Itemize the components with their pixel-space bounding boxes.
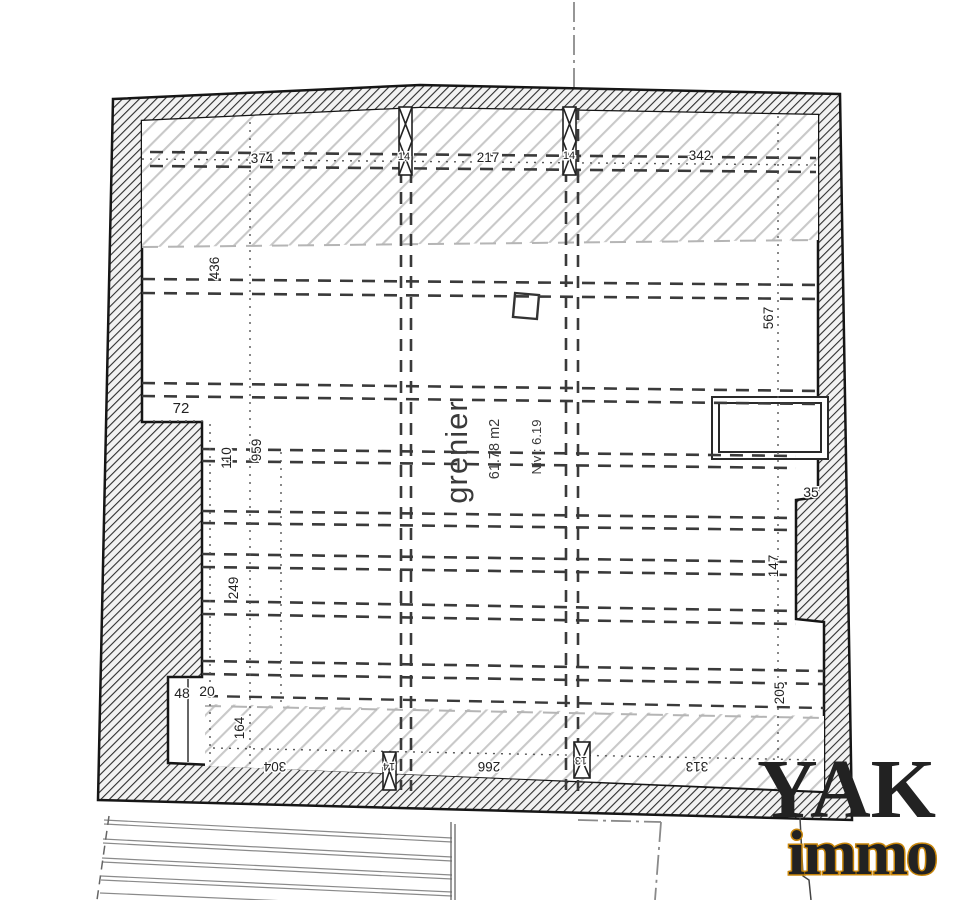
agency-logo: YAK immo: [757, 743, 936, 888]
dim-266: 266: [478, 759, 501, 774]
room-area-label: 61.78 m2: [487, 419, 503, 479]
dim-313: 313: [686, 759, 709, 774]
dim-147: 147: [766, 555, 781, 578]
dim-436: 436: [207, 257, 222, 280]
dim-217: 217: [477, 150, 500, 165]
dim-205: 205: [772, 682, 787, 705]
dim-35: 35: [803, 484, 819, 500]
dim-959: 959: [249, 439, 264, 462]
floor-plan-page: 374 217 342 436 72 110 959 249 164 48 20…: [0, 0, 967, 900]
dim-110: 110: [219, 447, 234, 469]
dim-304: 304: [263, 759, 286, 774]
dim-567: 567: [761, 307, 776, 330]
dim-164: 164: [232, 716, 247, 739]
dim-post-14-top-center: 14: [563, 150, 575, 162]
room-name-label: grenier: [439, 400, 474, 504]
dim-post-14-top-left: 14: [398, 151, 410, 163]
room-annotation: grenier 61.78 m2 Niv : 6.19: [439, 400, 544, 504]
room-level-label: Niv : 6.19: [529, 420, 544, 475]
logo-sub-text: immo: [788, 817, 936, 888]
post-top-center: [563, 107, 576, 175]
floor-plan-svg: 374 217 342 436 72 110 959 249 164 48 20…: [0, 0, 967, 900]
post-top-left: [399, 107, 412, 175]
dim-post-13-bottom: 13: [575, 754, 587, 766]
dim-48: 48: [174, 685, 190, 701]
roof-slope-band-top: [142, 108, 818, 247]
dim-72: 72: [173, 400, 190, 417]
dim-342: 342: [689, 148, 712, 163]
dormer-box: [712, 397, 828, 459]
deck-lines: [100, 820, 452, 900]
dim-249: 249: [226, 577, 241, 600]
dim-post-14-bottom: 14: [383, 760, 395, 772]
dim-20: 20: [199, 683, 215, 699]
dim-374: 374: [251, 151, 274, 166]
deck-right-edge: [451, 822, 455, 900]
